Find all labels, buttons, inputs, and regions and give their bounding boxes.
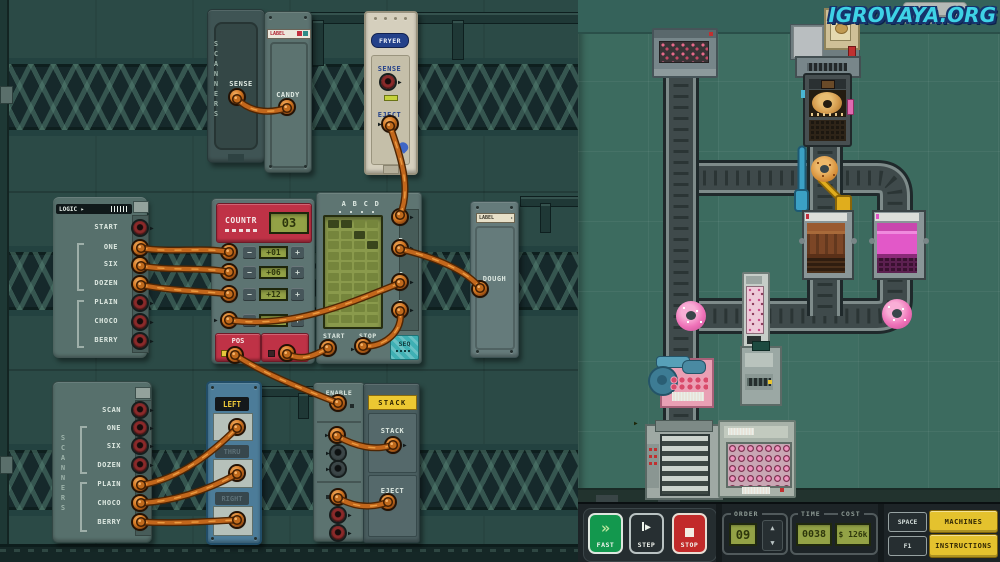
router-option-right[interactable]: RIGHT: [215, 492, 249, 505]
machine-decorator[interactable]: [648, 352, 712, 410]
port-logic-berry[interactable]: [133, 334, 147, 348]
space-key[interactable]: SPACE: [888, 512, 927, 532]
seq-start-label: START: [323, 333, 345, 340]
fryer-pin: [801, 90, 805, 98]
module-fryer[interactable]: FRYER SENSE EJECT: [364, 11, 418, 175]
fast-forward-icon: »: [590, 519, 621, 537]
seq-cell[interactable]: [328, 304, 339, 312]
belt-loop: [681, 178, 895, 316]
seq-cell[interactable]: [354, 294, 365, 302]
seq-cell[interactable]: [354, 220, 365, 228]
seq-badge-dots: [396, 350, 412, 352]
counter-dashes: [225, 229, 259, 232]
fryer-badge: FRYER: [371, 33, 409, 48]
seq-cell[interactable]: [341, 262, 352, 270]
screws: [269, 16, 272, 19]
eject-port-label: EJECT: [369, 488, 416, 496]
glazer-grill: [877, 258, 917, 273]
scan-row-dozen: DOZEN: [55, 462, 121, 470]
pipe: [452, 20, 464, 60]
tray-barcode-bottom: [742, 487, 770, 494]
seq-col-d: D: [372, 201, 382, 209]
group-bracket: [80, 426, 87, 474]
seq-cell[interactable]: [328, 283, 339, 291]
arrow-icon: ▶: [351, 346, 355, 353]
module-dough[interactable]: LABEL ▸ DOUGH: [470, 201, 519, 358]
port-seq-d[interactable]: [393, 303, 407, 317]
step-label: STEP: [638, 541, 656, 549]
scan-row-berry: BERRY: [55, 519, 121, 527]
decorator-barcode: [672, 392, 704, 401]
seq-cell[interactable]: [328, 294, 339, 302]
machine-tray[interactable]: [718, 420, 796, 498]
router-option-left[interactable]: LEFT: [215, 397, 249, 411]
order-stepper[interactable]: ▲ ▼: [762, 520, 783, 551]
stage: SCANNERS SENSE LABEL CANDY FRYE: [0, 0, 1000, 562]
module-counter[interactable]: COUNTR 03 − +01 + − +06 + − +12 + ▶ − + …: [211, 198, 315, 364]
unit-cap: [752, 341, 770, 351]
port-seq-c[interactable]: [393, 275, 407, 289]
port-counter-pos[interactable]: [228, 348, 242, 362]
machine-sprinkler[interactable]: [742, 272, 770, 352]
port-arrow-icon: ▶: [150, 245, 154, 252]
port-stack-in[interactable]: [386, 438, 400, 452]
machine-fryer[interactable]: [803, 73, 852, 147]
candy-row: [670, 376, 708, 390]
seq-cell[interactable]: [367, 315, 378, 323]
port-enable-b1[interactable]: [331, 490, 345, 504]
group-bracket: [80, 482, 87, 532]
port-router-left[interactable]: [230, 420, 244, 434]
scan-row-plain: PLAIN: [55, 481, 121, 489]
seq-cell[interactable]: [367, 262, 378, 270]
seq-cell[interactable]: [341, 231, 352, 239]
seq-cell[interactable]: [354, 283, 365, 291]
port-arrow-icon: ▶: [378, 121, 382, 128]
tray-top-strip: [724, 426, 788, 438]
pipe: [298, 393, 309, 419]
increment-display-1: +01: [259, 246, 288, 259]
loader-leds: [649, 448, 652, 451]
decrement-button[interactable]: −: [243, 314, 256, 327]
machine-foot: [596, 495, 618, 502]
fryer-top-bar: [809, 79, 846, 89]
port-fryer-sense[interactable]: [381, 75, 395, 89]
enable-indicator: [350, 404, 354, 408]
unit-led: [768, 380, 772, 384]
seq-cell[interactable]: [328, 262, 339, 270]
stop-button[interactable]: STOP: [672, 513, 707, 554]
fryer-sense-label: SENSE: [371, 66, 408, 74]
increment-display-4: [259, 314, 288, 327]
increment-button[interactable]: +: [291, 266, 304, 279]
fast-label: FAST: [597, 541, 615, 549]
port-counter-in2[interactable]: [222, 265, 236, 279]
increment-button[interactable]: +: [291, 288, 304, 301]
wall-clamp: [0, 456, 13, 474]
screws: [384, 17, 387, 20]
counter-display: 03: [269, 212, 309, 234]
label-chip-red: [297, 31, 302, 36]
seq-cell[interactable]: [328, 273, 339, 281]
hopper-lip: [654, 69, 716, 76]
port-scan2-dozen[interactable]: [133, 458, 147, 472]
label-chip-teal: [303, 31, 308, 36]
module-candy[interactable]: LABEL CANDY: [264, 11, 312, 173]
port-arrow-icon: ▶: [150, 319, 154, 326]
machine-pink-glazer[interactable]: [872, 210, 926, 280]
seq-cell[interactable]: [341, 252, 352, 260]
increment-display-2: +06: [259, 266, 288, 279]
stack-badge-text: STACK: [378, 399, 407, 407]
port-fryer-eject[interactable]: [383, 117, 397, 131]
router-left-label: LEFT: [223, 400, 241, 409]
port-enable-m2[interactable]: [331, 446, 345, 460]
dispenser-slot: [807, 63, 847, 71]
machines-button[interactable]: MACHINES: [929, 510, 998, 533]
machine-chocolate-glazer[interactable]: [802, 210, 854, 280]
port-enable-b3[interactable]: [331, 526, 345, 540]
port-arrow-icon: ▶: [150, 225, 154, 232]
second-led: [268, 350, 275, 357]
wall-left-edge: [0, 0, 9, 562]
port-arrow-icon: ▶: [150, 500, 154, 507]
donut-sprinkles: [888, 306, 890, 308]
router-option-thru[interactable]: THRU: [215, 445, 249, 458]
port-arrow-icon: ▶: [150, 338, 154, 345]
port-arrow-icon: ▶: [150, 519, 154, 526]
control-bar: » FAST ▶ STEP STOP ORDER 09 ▲ ▼ TI: [578, 502, 1000, 562]
loader-panel: [647, 444, 659, 488]
seq-cell[interactable]: [354, 252, 365, 260]
fast-button[interactable]: » FAST: [588, 513, 623, 554]
arm-joint: [657, 375, 667, 385]
screws: [374, 17, 377, 20]
port-scan2-choco[interactable]: [133, 496, 147, 510]
glazer-tick: [876, 214, 879, 219]
seq-cell[interactable]: [354, 315, 365, 323]
module-scanner-logic[interactable]: LOGIC ▸ START ONE SIX DOZEN PLAIN CHOCO …: [53, 197, 147, 358]
port-arrow-icon: ▶: [150, 281, 154, 288]
port-arrow-icon: ▶: [410, 307, 414, 314]
sequence-pointer-icon: ▶: [634, 420, 638, 427]
stepper-up-icon[interactable]: ▲: [770, 524, 774, 532]
port-dough-in[interactable]: [473, 282, 487, 296]
port-seq-stop[interactable]: [356, 339, 370, 353]
glazer-tick: [806, 214, 809, 219]
fryer-led: [384, 95, 398, 101]
sprinkler-top: [746, 276, 762, 284]
port-arrow-icon: ▶: [150, 425, 154, 432]
fryer-foot: [383, 165, 399, 174]
seq-cell[interactable]: [341, 294, 352, 302]
sprinkler-window: [746, 286, 764, 334]
hopper-top: [654, 30, 716, 38]
port-logic-dozen[interactable]: [133, 277, 147, 291]
port-arrow-icon: ▶: [410, 279, 414, 286]
port-arrow-icon: ▶: [150, 300, 154, 307]
screws: [404, 17, 407, 20]
port-enable-b2[interactable]: [331, 508, 345, 522]
scanner-foot: [228, 154, 244, 162]
screws: [211, 537, 214, 540]
module-scanner-top[interactable]: SCANNERS SENSE: [207, 9, 265, 163]
loader-belt: [660, 434, 710, 496]
seq-cell[interactable]: [354, 241, 365, 249]
seq-cell[interactable]: [328, 241, 339, 249]
seq-cell[interactable]: [328, 315, 339, 323]
enable-pin: [326, 495, 330, 499]
router-right-label: RIGHT: [221, 495, 242, 503]
seq-cell[interactable]: [341, 273, 352, 281]
donut-hole: [892, 309, 902, 318]
donut-pink-right: [882, 299, 912, 329]
hopper-light: [709, 32, 713, 36]
wiring-wall: SCANNERS SENSE LABEL CANDY FRYE: [0, 0, 578, 562]
router-thru-label: THRU: [224, 448, 241, 456]
cost-display: $ 126k: [835, 523, 871, 546]
seq-cell[interactable]: [328, 231, 339, 239]
port-arrow-icon: ▶: [325, 432, 329, 439]
label-strip-text: LABEL: [270, 31, 285, 37]
port-enable-m3[interactable]: [331, 462, 345, 476]
decrement-button[interactable]: −: [243, 288, 256, 301]
machine-candy-hopper[interactable]: [652, 28, 718, 78]
scan-row-six: SIX: [55, 443, 121, 451]
port-scan2-berry[interactable]: [133, 515, 147, 529]
port-logic-six[interactable]: [133, 258, 147, 272]
fryer-title: FRYER: [379, 37, 401, 45]
counter-header: COUNTR 03: [216, 203, 312, 243]
seq-cell[interactable]: [367, 304, 378, 312]
divider: [317, 481, 361, 483]
port-scan2-plain[interactable]: [133, 477, 147, 491]
screws: [304, 16, 307, 19]
logic-row-plain: PLAIN: [55, 299, 118, 307]
port-candy-in[interactable]: [280, 100, 294, 114]
port-logic-choco[interactable]: [133, 315, 147, 329]
port-logic-one[interactable]: [133, 241, 147, 255]
order-label: ORDER: [731, 510, 762, 518]
glazer-bolt: [851, 238, 857, 244]
port-enable-top[interactable]: [331, 396, 345, 410]
seq-cell[interactable]: [341, 315, 352, 323]
mount-tab: [135, 387, 151, 399]
oil-bubbles: [811, 113, 844, 116]
watermark: IGROVAYA.ORG: [828, 3, 996, 27]
port-counter-in3[interactable]: [222, 287, 236, 301]
glazer-bolt: [923, 238, 929, 244]
seq-cell[interactable]: [328, 252, 339, 260]
machine-small-unit[interactable]: [740, 346, 782, 406]
glazer-grill: [807, 258, 845, 273]
seq-cell[interactable]: [341, 283, 352, 291]
seq-cell[interactable]: [367, 283, 378, 291]
seq-cell[interactable]: [328, 220, 339, 228]
mount-tab: [133, 201, 149, 213]
step-button[interactable]: ▶ STEP: [629, 513, 664, 554]
screws: [476, 350, 479, 353]
seq-badge: SEQ: [390, 335, 419, 360]
seq-col-a: A: [339, 201, 349, 209]
scan-row-scan: SCAN: [55, 407, 121, 415]
port-logic-plain[interactable]: [133, 296, 147, 310]
glazer-bolt: [869, 238, 875, 244]
logic-row-dozen: DOZEN: [55, 280, 118, 288]
port-seq-start[interactable]: [321, 341, 335, 355]
port-enable-m1[interactable]: [330, 428, 344, 442]
seq-cell[interactable]: [367, 273, 378, 281]
port-arrow-icon: ▶: [150, 407, 154, 414]
stop-icon: [674, 522, 705, 541]
group-bracket: [77, 243, 84, 291]
port-router-right[interactable]: [230, 513, 244, 527]
logic-row-start: START: [55, 224, 118, 232]
module-stack[interactable]: STACK STACK EJECT: [363, 383, 420, 543]
stack-badge: STACK: [368, 395, 417, 410]
seq-cell[interactable]: [367, 252, 378, 260]
seq-col-b: B: [350, 201, 360, 209]
logic-header-barcode: [111, 206, 129, 212]
screws: [510, 206, 513, 209]
port-router-thru[interactable]: [230, 466, 244, 480]
machine-output-loader[interactable]: [645, 424, 723, 500]
seq-cell[interactable]: [341, 304, 352, 312]
screws: [476, 206, 479, 209]
tray-barcode: [728, 428, 754, 435]
fryer-handle: [847, 99, 854, 115]
increment-display-3: +12: [259, 288, 288, 301]
pos-led: [221, 350, 228, 357]
donut-in-fryer: [812, 92, 842, 114]
label-strip-arrow: ▸: [511, 215, 513, 220]
port-scan2-one[interactable]: [133, 421, 147, 435]
port-sense-out[interactable]: [230, 90, 244, 104]
port-scan2-scan[interactable]: [133, 403, 147, 417]
tray-window: [726, 442, 792, 488]
port-scan2-six[interactable]: [133, 439, 147, 453]
label-strip: LABEL ▸: [476, 213, 515, 223]
seq-col-c: C: [361, 201, 371, 209]
port-arrow-icon: ▶: [410, 245, 414, 252]
port-counter-res[interactable]: [280, 346, 294, 360]
f1-key[interactable]: F1: [888, 536, 927, 556]
screws: [304, 165, 307, 168]
pipe: [300, 12, 580, 24]
divider: [317, 421, 361, 423]
counter-title: COUNTR: [225, 216, 257, 225]
glaze-feed: [807, 223, 845, 231]
port-seq-a[interactable]: [393, 210, 407, 224]
port-arrow-icon: ▶: [403, 442, 407, 449]
pos-label: POS: [216, 337, 260, 345]
donut-hole: [823, 100, 832, 108]
glazer-top-strip: [875, 213, 919, 221]
step-icon: ▶: [631, 522, 662, 533]
sense-label: SENSE: [221, 81, 261, 89]
label-strip-text: LABEL: [479, 215, 494, 221]
cost-label: COST: [838, 510, 864, 518]
pink-window: [877, 231, 917, 256]
pipe: [312, 20, 324, 66]
order-group: ORDER 09 ▲ ▼: [722, 513, 788, 555]
donut-specks: [817, 162, 819, 164]
instructions-button[interactable]: INSTRUCTIONS: [929, 534, 998, 558]
glazer-top-strip: [805, 213, 847, 221]
seq-col-ticks: [339, 211, 383, 213]
port-logic-start[interactable]: [133, 221, 147, 235]
seq-cell[interactable]: [341, 241, 352, 249]
donut-hole: [820, 165, 829, 173]
port-arrow-icon: ▶: [398, 79, 402, 86]
port-counter-in1[interactable]: [222, 245, 236, 259]
screws: [211, 386, 214, 389]
seq-cell[interactable]: [367, 220, 378, 228]
decrement-button[interactable]: −: [243, 266, 256, 279]
fryer-indicator-window: [821, 80, 835, 89]
increment-button[interactable]: +: [291, 246, 304, 259]
seq-cell[interactable]: [354, 304, 365, 312]
bar-separator: [878, 504, 884, 562]
fryer-oil-window: [809, 90, 846, 117]
label-strip: LABEL: [267, 29, 311, 39]
seq-cell[interactable]: [367, 231, 378, 239]
fryer-grill: [809, 120, 846, 141]
logic-row-choco: CHOCO: [55, 318, 118, 326]
increment-button[interactable]: +: [291, 314, 304, 327]
seq-cell[interactable]: [341, 220, 352, 228]
sequencer-grid[interactable]: [323, 215, 383, 329]
glaze-feed: [877, 223, 917, 231]
donut-pink-left: [676, 301, 706, 331]
donut-sprinkles: [683, 307, 685, 309]
logic-row-one: ONE: [55, 244, 118, 252]
time-label: TIME: [798, 510, 824, 518]
port-arrow-icon: ▶: [150, 481, 154, 488]
donut-glazed: [811, 156, 838, 182]
port-arrow-icon: ▶: [150, 262, 154, 269]
port-arrow-icon: ▶: [326, 466, 330, 473]
stop-label: STOP: [681, 541, 699, 549]
port-counter-in4[interactable]: [222, 313, 236, 327]
port-arrow-icon: ▶: [410, 214, 414, 221]
seq-cell[interactable]: [354, 262, 365, 270]
glazer-bolt: [799, 238, 805, 244]
seq-cell[interactable]: [367, 294, 378, 302]
factory-floor: IGROVAYA.ORG » FAST ▶ STEP STOP ORDER 09…: [578, 0, 1000, 562]
logic-header-text: LOGIC ▸: [59, 206, 84, 213]
port-arrow-icon: ▶: [326, 450, 330, 457]
loader-hopper: [655, 420, 713, 432]
port-arrow-icon: ▶: [150, 443, 154, 450]
chocolate-window: [807, 231, 845, 256]
port-stack-eject[interactable]: [381, 495, 395, 509]
screws: [254, 386, 257, 389]
group-bracket: [77, 300, 84, 348]
stepper-down-icon[interactable]: ▼: [770, 539, 774, 547]
seq-cell[interactable]: [367, 241, 378, 249]
decrement-button[interactable]: −: [243, 246, 256, 259]
seq-cell[interactable]: [354, 231, 365, 239]
screws: [254, 537, 257, 540]
logic-row-berry: BERRY: [55, 337, 118, 345]
screws: [269, 165, 272, 168]
port-arrow-icon: ▶: [348, 530, 352, 537]
seq-cell[interactable]: [354, 273, 365, 281]
scan-row-choco: CHOCO: [55, 500, 121, 508]
seq-badge-text: SEQ: [391, 340, 418, 348]
port-seq-b[interactable]: [393, 241, 407, 255]
